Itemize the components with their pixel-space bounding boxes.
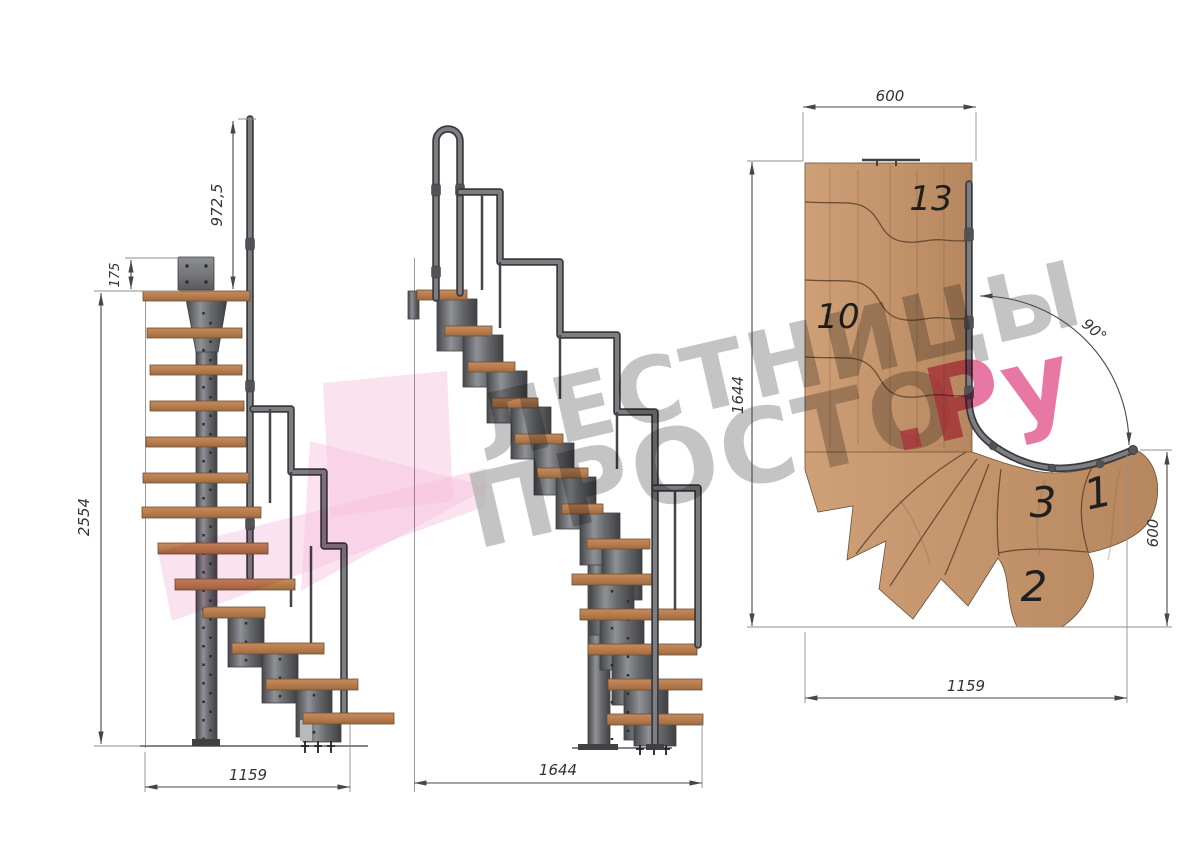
base-flange <box>578 744 618 750</box>
dim-label-1159-front: 1159 <box>229 766 267 784</box>
step-number-2: 2 <box>1021 562 1048 611</box>
step-number-13: 13 <box>909 179 952 219</box>
wall-mount-plate <box>178 257 214 290</box>
post-flange <box>646 744 664 750</box>
dim-label-1644-side: 1644 <box>539 761 577 779</box>
drawing-svg: 13 10 3 1 2 ЛЕСТНИЦЫ ПРОСТО .Ру 972,5 17… <box>0 0 1200 849</box>
dim-label-1159-plan: 1159 <box>947 677 985 695</box>
tube-sleeve <box>432 184 441 196</box>
dim-label-2554: 2554 <box>75 498 93 536</box>
tread <box>143 291 250 301</box>
tread <box>580 609 695 620</box>
tread <box>266 679 358 690</box>
column-flare <box>186 299 227 352</box>
base-flange <box>192 739 220 746</box>
tread <box>203 607 265 618</box>
anchor-bolts <box>301 741 335 753</box>
tread <box>143 473 249 483</box>
ext-line <box>94 258 180 291</box>
tread <box>303 713 394 724</box>
dim-label-175: 175 <box>108 263 123 288</box>
tread <box>147 328 242 338</box>
tube-joint <box>1048 464 1056 472</box>
tube-sleeve <box>246 238 255 250</box>
tube-sleeve <box>246 380 255 392</box>
tube-sleeve <box>432 266 441 278</box>
tread <box>588 644 697 655</box>
staircase-drawing-canvas: 13 10 3 1 2 ЛЕСТНИЦЫ ПРОСТО .Ру 972,5 17… <box>0 0 1200 849</box>
tread <box>150 365 242 375</box>
handrail-end-cap <box>1129 446 1138 455</box>
dim-label-972: 972,5 <box>208 184 226 227</box>
tread <box>150 401 244 411</box>
dim-label-600-top: 600 <box>876 87 905 105</box>
step-number-3: 3 <box>1030 478 1057 527</box>
tread <box>572 574 658 585</box>
tread <box>142 507 261 518</box>
bolt <box>204 264 207 267</box>
tread <box>445 326 492 336</box>
tread <box>146 437 246 447</box>
bolt <box>185 280 188 283</box>
tread <box>232 643 324 654</box>
bolt <box>204 280 207 283</box>
tube-sleeve <box>965 228 974 241</box>
dim-label-600-right: 600 <box>1144 519 1162 548</box>
bolt <box>185 264 188 267</box>
dim-label-1644-plan: 1644 <box>729 376 747 414</box>
ext-line <box>803 112 976 161</box>
